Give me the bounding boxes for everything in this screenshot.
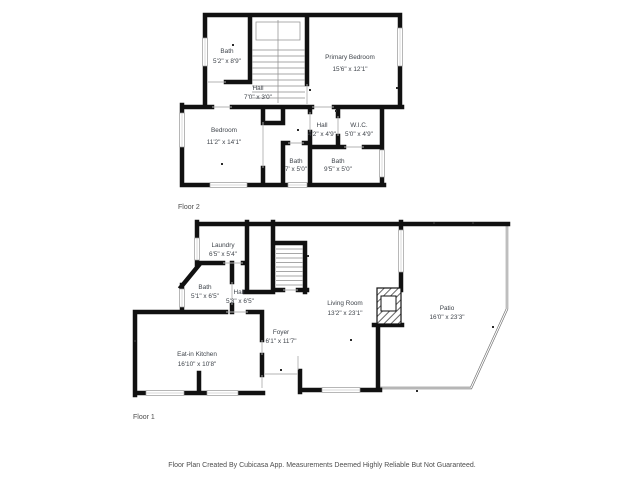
room-name: Eat-in Kitchen bbox=[177, 351, 217, 358]
window bbox=[195, 238, 200, 260]
room-dims: 5'0" x 4'9" bbox=[345, 131, 373, 138]
floor2-door-openings bbox=[208, 82, 364, 168]
floor2-label: Floor 2 bbox=[178, 204, 200, 211]
window bbox=[288, 183, 307, 188]
window bbox=[399, 230, 404, 272]
window bbox=[207, 391, 238, 396]
window bbox=[146, 391, 184, 396]
window bbox=[203, 38, 208, 66]
room-dims: 9'5" x 5'0" bbox=[324, 166, 352, 173]
room-dims: 16'0" x 23'3" bbox=[429, 314, 464, 321]
floor-plan-drawing: Bath 5'2" x 8'9" Hall 7'0" x 3'0" Primar… bbox=[0, 0, 640, 480]
room-bath-upper: Bath 5'2" x 8'9" bbox=[213, 48, 241, 65]
room-dims: 5'2" x 8'9" bbox=[213, 58, 241, 65]
room-name: Bath bbox=[331, 158, 345, 165]
floor1-staircase bbox=[276, 249, 303, 285]
room-name: Foyer bbox=[273, 329, 290, 336]
room-dims: 4'2" x 4'9" bbox=[308, 131, 336, 138]
window bbox=[210, 183, 247, 188]
room-name: Primary Bedroom bbox=[325, 54, 375, 61]
room-name: Living Room bbox=[327, 300, 363, 307]
room-foyer: Foyer 6'1" x 11'7" bbox=[265, 329, 296, 345]
room-name: Bedroom bbox=[211, 127, 237, 134]
floor2-room-labels: Bath 5'2" x 8'9" Hall 7'0" x 3'0" Primar… bbox=[207, 48, 375, 173]
room-name: Patio bbox=[440, 305, 455, 312]
room-name: Hall bbox=[252, 85, 263, 92]
room-dims: 6'1" x 11'7" bbox=[265, 338, 296, 345]
room-dims: 7'0" x 3'0" bbox=[244, 94, 272, 101]
room-dims: 13'2" x 23'1" bbox=[327, 310, 362, 317]
room-name: Hall bbox=[316, 122, 327, 129]
room-eat-in-kitchen: Eat-in Kitchen 16'10" x 10'8" bbox=[177, 351, 217, 368]
window bbox=[322, 388, 360, 393]
floor1-plan: Laundry 6'5" x 5'4" Bath 5'1" x 6'5" Hal… bbox=[133, 222, 508, 421]
fireplace bbox=[377, 288, 401, 324]
room-bath-right: Bath 9'5" x 5'0" bbox=[324, 158, 352, 173]
room-laundry: Laundry 6'5" x 5'4" bbox=[209, 242, 237, 258]
room-living-room: Living Room 13'2" x 23'1" bbox=[327, 300, 363, 317]
fireplace-firebox bbox=[381, 296, 396, 311]
room-dims: 7' x 5'0" bbox=[285, 166, 307, 173]
floor-plan-page: Bath 5'2" x 8'9" Hall 7'0" x 3'0" Primar… bbox=[0, 0, 640, 480]
room-primary-bedroom: Primary Bedroom 15'6" x 12'1" bbox=[325, 54, 375, 73]
floor2-plan: Bath 5'2" x 8'9" Hall 7'0" x 3'0" Primar… bbox=[178, 15, 402, 211]
room-dims: 5'3" x 6'5" bbox=[226, 298, 254, 305]
window bbox=[380, 150, 385, 177]
stair-treads bbox=[276, 249, 303, 285]
room-name: Laundry bbox=[211, 242, 235, 249]
window bbox=[398, 28, 403, 66]
room-bedroom: Bedroom 11'2" x 14'1" bbox=[207, 127, 242, 146]
room-name: W.I.C. bbox=[350, 122, 368, 129]
room-wic: W.I.C. 5'0" x 4'9" bbox=[345, 122, 373, 138]
room-hall-upper: Hall 7'0" x 3'0" bbox=[244, 85, 272, 101]
footer-attribution: Floor Plan Created By Cubicasa App. Meas… bbox=[168, 462, 475, 469]
room-name: Bath bbox=[289, 158, 303, 165]
room-bath: Bath 5'1" x 6'5" bbox=[191, 284, 219, 300]
floor1-label: Floor 1 bbox=[133, 414, 155, 421]
window bbox=[180, 289, 185, 307]
room-name: Bath bbox=[220, 48, 234, 55]
window bbox=[180, 113, 185, 147]
room-dims: 15'6" x 12'1" bbox=[332, 66, 367, 73]
room-name: Bath bbox=[198, 284, 212, 291]
room-name: Hall bbox=[233, 289, 244, 296]
room-bath-small: Bath 7' x 5'0" bbox=[285, 158, 307, 173]
room-patio: Patio 16'0" x 23'3" bbox=[429, 305, 464, 321]
room-dims: 11'2" x 14'1" bbox=[207, 139, 242, 146]
measurement-ticks bbox=[134, 44, 494, 392]
room-dims: 6'5" x 5'4" bbox=[209, 251, 237, 258]
room-dims: 16'10" x 10'8" bbox=[178, 361, 217, 368]
room-dims: 5'1" x 6'5" bbox=[191, 293, 219, 300]
